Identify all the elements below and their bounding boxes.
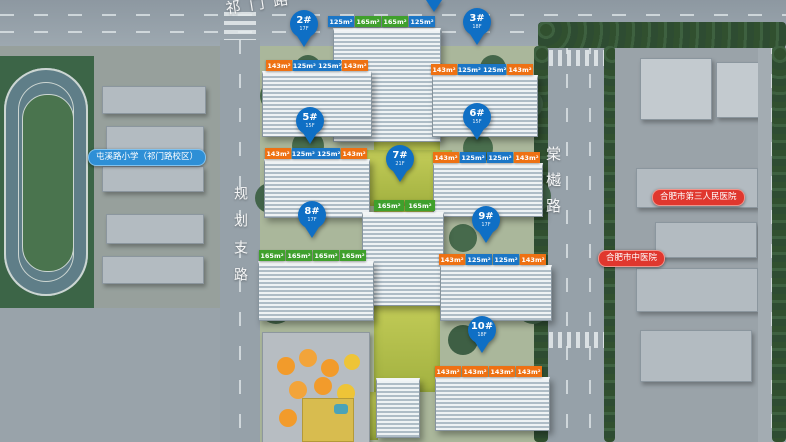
area-tag: 165m² xyxy=(355,16,381,27)
area-tags-2: 143m²125m² 125m²143m² xyxy=(266,60,368,71)
school-building xyxy=(102,166,204,192)
pin-bubble: 8#17F xyxy=(298,201,326,229)
school-building xyxy=(102,256,204,284)
kindergarten-pool xyxy=(334,404,348,414)
building-pin-7[interactable]: 7#21F xyxy=(385,145,415,189)
area-tag: 143m² xyxy=(431,64,457,75)
pin-building-number: 6# xyxy=(469,109,484,119)
pin-floor-count: 17F xyxy=(307,217,316,223)
building-pin-8[interactable]: 8#17F xyxy=(297,201,327,245)
building-pin-partial[interactable] xyxy=(426,0,442,20)
pin-floor-count: 17F xyxy=(481,222,490,228)
pin-bubble: 3#18F xyxy=(463,8,491,36)
area-tag: 143m² xyxy=(507,64,533,75)
area-tag: 143m² xyxy=(266,60,292,71)
community-building xyxy=(376,378,420,438)
pin-tail xyxy=(393,171,407,189)
pin-floor-count: 15F xyxy=(305,123,314,129)
pin-building-number: 10# xyxy=(471,322,493,332)
road-east xyxy=(545,40,611,442)
south-west-plaza xyxy=(0,308,220,442)
pin-bubble: 9#17F xyxy=(472,206,500,234)
building-9 xyxy=(440,265,552,321)
area-tag: 125m² xyxy=(328,16,354,27)
pin-building-number: 3# xyxy=(469,14,484,24)
building-8 xyxy=(258,261,374,321)
area-tag: 143m² xyxy=(516,366,542,377)
pin-floor-count: 21F xyxy=(395,161,404,167)
area-tag: 165m² xyxy=(340,250,366,261)
area-tags-top: 125m²165m²165m²125m² xyxy=(328,16,435,27)
kindergarten-roof-dots xyxy=(263,333,273,343)
pin-floor-count: 18F xyxy=(477,332,486,338)
area-tag: 143m² xyxy=(435,366,461,377)
building-pin-3[interactable]: 3#18F xyxy=(462,8,492,52)
area-tag: 125m² 125m² xyxy=(293,60,341,71)
pin-floor-count: 15F xyxy=(472,119,481,125)
building-roof xyxy=(640,58,712,120)
track-infield xyxy=(22,94,74,272)
poi-hospital1-label[interactable]: 合肥市第三人民医院 xyxy=(652,189,745,206)
pin-tail xyxy=(305,227,319,245)
pin-building-number: 7# xyxy=(392,151,407,161)
pin-floor-count: 17F xyxy=(299,26,308,32)
area-tags-8: 165m²165m²165m²165m² xyxy=(259,250,366,261)
area-tag: 143m² xyxy=(265,148,291,159)
site-plan-aerial: 125m²165m²165m²125m²143m²125m² 125m²143m… xyxy=(0,0,786,442)
pin-building-number: 8# xyxy=(304,207,319,217)
area-tag: 165m² xyxy=(286,250,312,261)
road-label-tangyue: 棠樾路 xyxy=(543,146,564,224)
area-tags-10: 143m²143m²143m²143m² xyxy=(435,366,542,377)
pin-tail xyxy=(470,34,484,52)
area-tag: 125m² 125m² xyxy=(458,64,506,75)
tree-band-north xyxy=(538,22,786,48)
pin-floor-count: 18F xyxy=(472,24,481,30)
building-7 xyxy=(362,212,444,306)
pin-bubble: 2#17F xyxy=(290,10,318,38)
building-10 xyxy=(435,377,550,431)
area-tag: 143m² xyxy=(489,366,515,377)
pin-building-number: 5# xyxy=(302,113,317,123)
area-tag: 143m² xyxy=(342,60,368,71)
pin-bubble: 5#15F xyxy=(296,107,324,135)
pin-tail xyxy=(303,133,317,151)
area-tag: 143m² xyxy=(514,152,540,163)
tree-column xyxy=(604,46,615,442)
area-tag: 165m² xyxy=(405,200,435,211)
area-tag: 143m² xyxy=(520,254,546,265)
pin-tail xyxy=(470,129,484,147)
area-tag: 165m² xyxy=(259,250,285,261)
area-tags-7: 165m²165m² xyxy=(374,200,435,211)
area-tag: 143m² xyxy=(462,366,488,377)
building-pin-6[interactable]: 6#15F xyxy=(462,103,492,147)
area-tag: 143m² xyxy=(433,152,459,163)
building-pin-9[interactable]: 9#17F xyxy=(471,206,501,250)
area-tags-3: 143m²125m² 125m²143m² xyxy=(431,64,533,75)
hospital-building xyxy=(636,268,758,312)
pin-tail xyxy=(475,342,489,360)
pin-building-number: 9# xyxy=(478,212,493,222)
area-tag: 165m² xyxy=(374,200,404,211)
area-tags-9: 143m²125m²125m²143m² xyxy=(439,254,546,265)
building-pin-10[interactable]: 10#18F xyxy=(467,316,497,360)
area-tag: 125m² xyxy=(487,152,513,163)
pin-bubble: 7#21F xyxy=(386,145,414,173)
area-tag: 165m² xyxy=(313,250,339,261)
area-tag: 143m² xyxy=(439,254,465,265)
pin-bubble: 10#18F xyxy=(468,316,496,344)
road-label-guihua: 规划支路 xyxy=(230,186,250,294)
tree-column xyxy=(772,46,786,442)
building-pin-5[interactable]: 5#15F xyxy=(295,107,325,151)
poi-hospital2-label[interactable]: 合肥市中医院 xyxy=(598,250,665,267)
pin-tail xyxy=(297,36,311,54)
hospital-building xyxy=(640,330,752,382)
poi-school-label[interactable]: 屯溪路小学（祁门路校区） xyxy=(88,149,206,166)
building-pin-2[interactable]: 2#17F xyxy=(289,10,319,54)
area-tag: 165m² xyxy=(382,16,408,27)
area-tag: 125m² xyxy=(466,254,492,265)
area-tags-6: 143m²125m²125m²143m² xyxy=(433,152,540,163)
school-building xyxy=(106,214,204,244)
area-tag: 143m² xyxy=(341,148,367,159)
hospital-building xyxy=(655,222,757,258)
school-building xyxy=(102,86,206,114)
area-tag: 125m² xyxy=(493,254,519,265)
pin-bubble: 6#15F xyxy=(463,103,491,131)
pin-tail xyxy=(479,232,493,250)
pin-building-number: 2# xyxy=(296,16,311,26)
area-tag: 125m² xyxy=(460,152,486,163)
